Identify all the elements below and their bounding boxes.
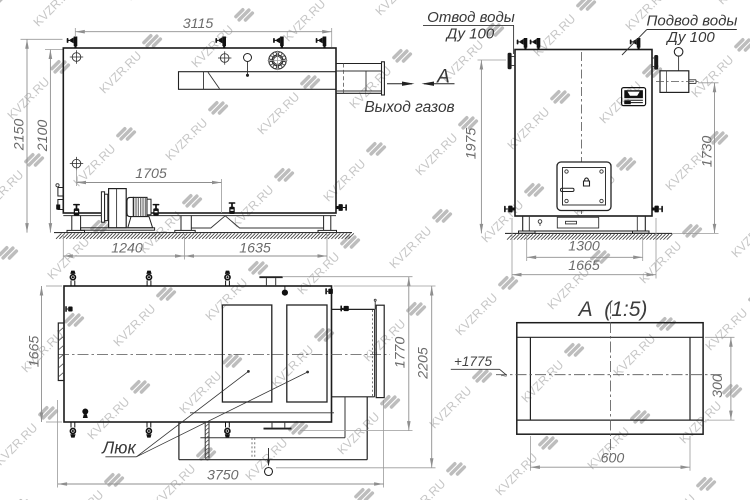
svg-text:Люк: Люк: [101, 438, 136, 458]
svg-text:Выход газов: Выход газов: [364, 99, 454, 116]
svg-text:3750: 3750: [207, 468, 239, 484]
svg-text:1975: 1975: [464, 128, 480, 160]
svg-text:Ду 100: Ду 100: [665, 29, 715, 46]
svg-text:3115: 3115: [183, 16, 214, 32]
svg-text:1665: 1665: [27, 336, 43, 368]
svg-text:1240: 1240: [111, 241, 143, 257]
svg-text:2205: 2205: [416, 347, 432, 380]
svg-text:1665: 1665: [568, 258, 600, 274]
svg-text:300: 300: [710, 374, 726, 398]
svg-text:2100: 2100: [35, 120, 51, 153]
svg-text:Ду 100: Ду 100: [445, 26, 495, 43]
svg-text:1705: 1705: [135, 166, 167, 182]
svg-text:~: ~: [500, 369, 507, 383]
svg-text:A: A: [436, 67, 450, 88]
svg-text:Подвод воды: Подвод воды: [647, 13, 738, 30]
svg-text:600: 600: [601, 451, 625, 467]
svg-text:1770: 1770: [393, 337, 409, 369]
svg-text:1635: 1635: [239, 241, 271, 257]
svg-text:+1775: +1775: [454, 354, 492, 369]
svg-text:Отвод воды: Отвод воды: [427, 9, 515, 26]
svg-text:1730: 1730: [700, 136, 716, 168]
svg-text:2150: 2150: [12, 119, 28, 152]
svg-text:1300: 1300: [568, 239, 600, 255]
svg-text:A (1:5): A (1:5): [577, 298, 648, 321]
